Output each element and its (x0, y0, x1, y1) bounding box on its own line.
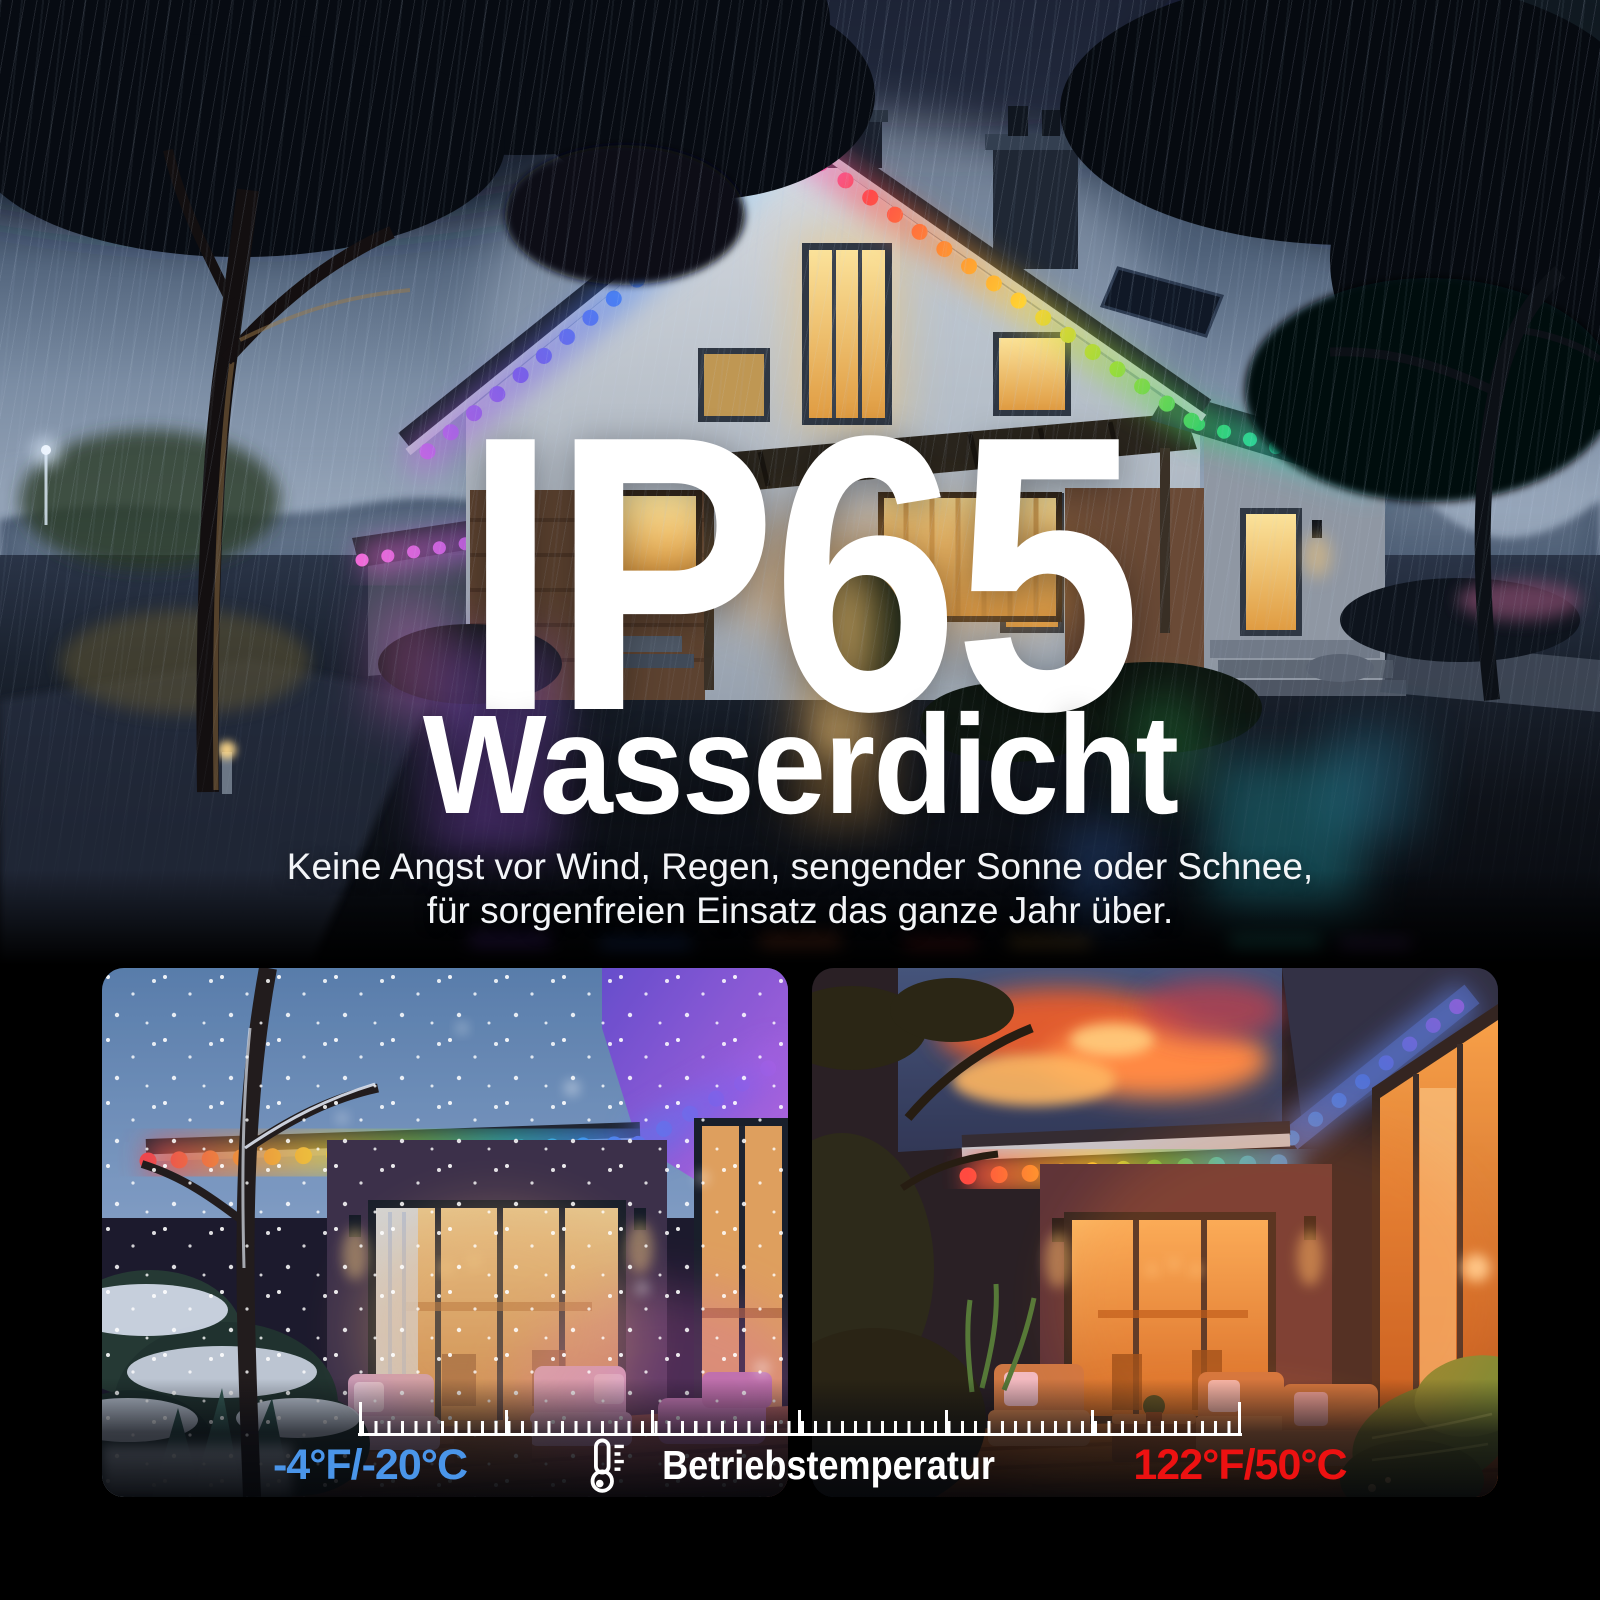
temperature-ruler (360, 1402, 1240, 1436)
operating-temperature-label: Betriebstemperatur (662, 1442, 995, 1489)
thermometer-icon (582, 1434, 626, 1496)
waterproof-heading: Wasserdicht (56, 694, 1544, 835)
min-temperature-label: -4°F/-20°C (240, 1441, 500, 1490)
hero-scene-rainy-house: IP65 Wasserdicht Keine Angst vor Wind, R… (0, 0, 1600, 965)
description-line-1: Keine Angst vor Wind, Regen, sengender S… (0, 846, 1600, 888)
description-line-2: für sorgenfreien Einsatz das ganze Jahr … (0, 890, 1600, 932)
ruler-end-tick-left (359, 1402, 362, 1433)
max-temperature-label: 122°F/50°C (1100, 1441, 1380, 1490)
ruler-end-tick-right (1238, 1402, 1241, 1433)
operating-temperature: Betriebstemperatur (582, 1434, 1017, 1496)
marketing-graphic-ip65: IP65 Wasserdicht Keine Angst vor Wind, R… (0, 0, 1600, 1600)
